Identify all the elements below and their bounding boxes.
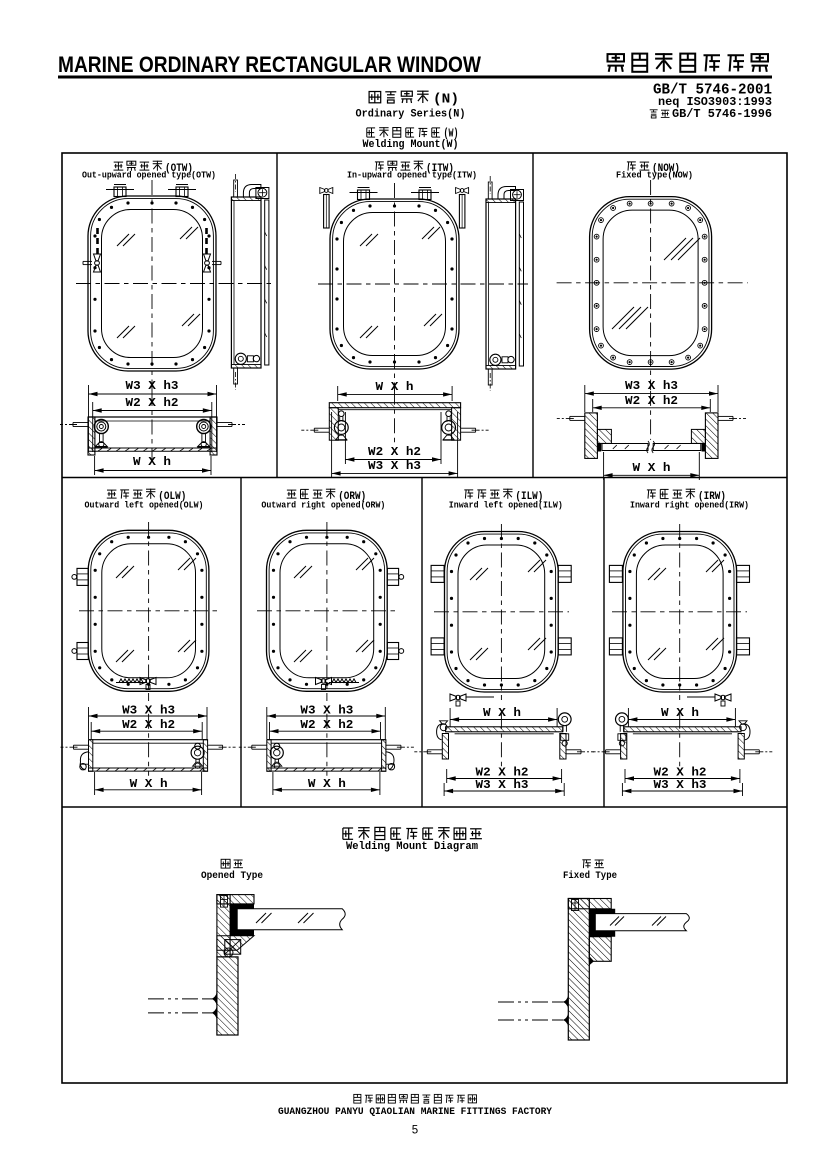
svg-text:W X h: W X h [308,777,346,791]
svg-text:Ordinary Series(N): Ordinary Series(N) [356,109,466,121]
svg-text:W2 X h2: W2 X h2 [625,394,678,408]
svg-text:Outward left opened(OLW): Outward left opened(OLW) [85,500,204,511]
svg-text:Fixed type(NOW): Fixed type(NOW) [616,170,693,181]
svg-text:Inward right opened(IRW): Inward right opened(IRW) [630,500,749,511]
svg-text:W3 X h3: W3 X h3 [126,379,179,393]
svg-text:(N): (N) [433,92,459,108]
svg-text:GUANGZHOU PANYU QIAOLIAN MARIN: GUANGZHOU PANYU QIAOLIAN MARINE FITTINGS… [278,1107,552,1118]
svg-text:Welding Mount Diagram: Welding Mount Diagram [346,841,478,853]
svg-text:W X h: W X h [483,706,521,720]
svg-text:W X h: W X h [633,461,671,475]
svg-text:GB/T 5746-1996: GB/T 5746-1996 [672,107,772,121]
svg-text:Outward right opened(ORW): Outward right opened(ORW) [261,500,385,511]
svg-text:W3 X h3: W3 X h3 [625,379,678,393]
svg-text:Inward left opened(ILW): Inward left opened(ILW) [449,500,563,511]
svg-text:MARINE ORDINARY RECTANGULAR WI: MARINE ORDINARY RECTANGULAR WINDOW [58,52,481,77]
svg-text:W3 X h3: W3 X h3 [476,778,529,792]
svg-text:Opened Type: Opened Type [201,870,263,882]
svg-text:In-upward opened type(ITW): In-upward opened type(ITW) [347,170,477,181]
svg-text:5: 5 [412,1125,418,1137]
svg-text:W2 X h2: W2 X h2 [368,445,421,459]
svg-text:W X h: W X h [133,455,171,469]
svg-text:W X h: W X h [130,777,168,791]
svg-text:W3 X h3: W3 X h3 [654,778,707,792]
svg-text:Out-upward opened type(OTW): Out-upward opened type(OTW) [82,170,216,181]
svg-text:Welding Mount(W): Welding Mount(W) [363,139,459,151]
svg-text:Fixed Type: Fixed Type [563,870,617,882]
svg-text:W3 X h3: W3 X h3 [368,459,421,473]
